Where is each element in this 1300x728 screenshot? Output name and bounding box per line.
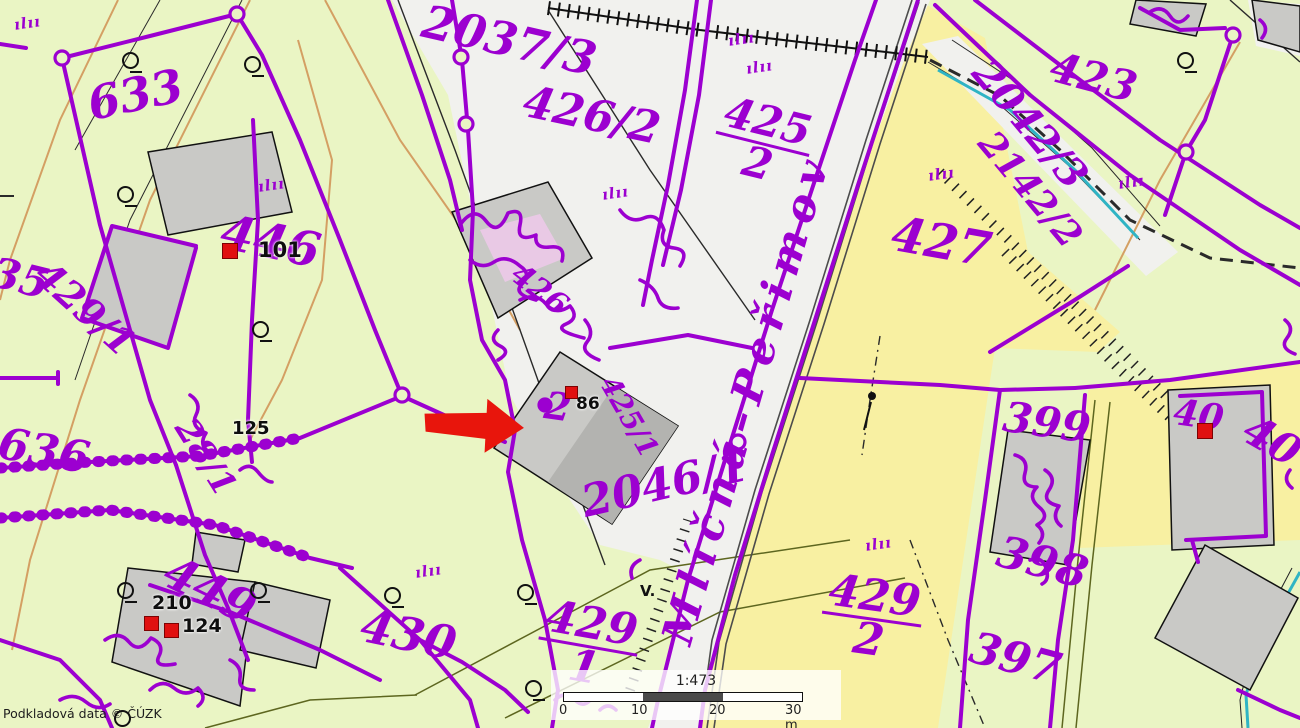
cadastral-map-canvas[interactable]: Mlíčná–Peřimov Podkladová data © ČÚZK 63…	[0, 0, 1300, 728]
scale-bar: 1:473 0 10 20 30 m	[551, 670, 841, 720]
scale-segment	[723, 693, 802, 701]
map-base	[0, 0, 1300, 728]
scale-ratio: 1:473	[551, 673, 841, 689]
scale-bar-graphic	[563, 692, 803, 702]
scale-ticks: 0 10 20 30 m	[553, 702, 815, 718]
scale-segment	[643, 693, 722, 701]
scale-segment	[564, 693, 643, 701]
